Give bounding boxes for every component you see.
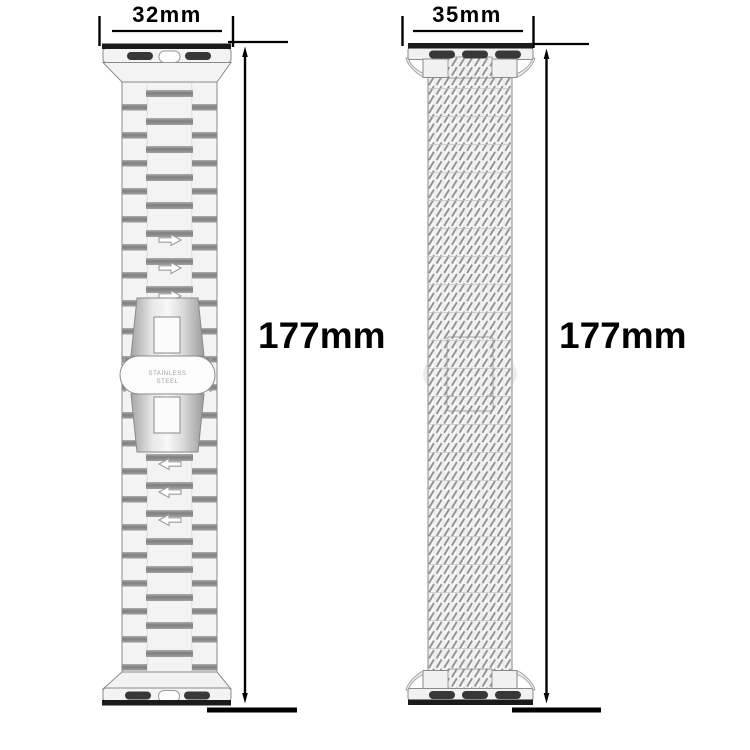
butterfly-clasp: STAINLESS STEEL	[120, 298, 215, 452]
clasp-screw-icon	[209, 389, 212, 392]
bottom-watch-adapter	[406, 669, 535, 705]
adapter-flare	[103, 63, 231, 83]
right-length-label: 177mm	[559, 315, 687, 356]
adapter-dark-bar	[408, 43, 533, 49]
mesh-tongue	[448, 57, 492, 78]
adapter-slot	[462, 51, 488, 59]
clasp-screw-icon	[123, 358, 126, 361]
left-length-label: 177mm	[258, 315, 386, 356]
clasp-engraving-line2: STEEL	[156, 379, 178, 385]
clasp-lower-cutout	[154, 397, 180, 433]
top-watch-adapter	[102, 44, 231, 83]
adapter-dark-bar	[102, 44, 231, 50]
adapter-flare	[103, 672, 231, 689]
right-measure-arrow-up-icon	[544, 49, 550, 60]
clasp-screw-icon	[209, 358, 212, 361]
adapter-slot	[184, 692, 210, 700]
clasp-engraving-line1: STAINLESS	[149, 371, 187, 377]
right-band	[406, 43, 535, 705]
mesh-row-seams	[428, 77, 512, 673]
bottom-watch-adapter	[102, 672, 231, 706]
product-dimension-image: 32mm 177mm	[0, 0, 750, 750]
adapter-dark-bar	[102, 700, 231, 706]
adapter-slot	[495, 51, 521, 59]
clasp-upper-cutout	[154, 317, 180, 353]
adapter-slot	[495, 691, 521, 699]
adapter-slot	[429, 51, 455, 59]
mesh-tongue	[448, 669, 492, 690]
adapter-slot	[125, 692, 151, 700]
adapter-dark-bar	[408, 700, 533, 706]
right-measure-arrow-down-icon	[544, 693, 550, 704]
adapter-slot	[462, 691, 488, 699]
adapter-slot	[429, 691, 455, 699]
adapter-slot	[127, 52, 153, 60]
left-band: STAINLESS STEEL	[102, 44, 231, 706]
adapter-release-button	[159, 51, 180, 63]
left-measure-arrow-up-icon	[242, 47, 248, 58]
left-width-label: 32mm	[132, 2, 202, 27]
clasp-screw-icon	[123, 389, 126, 392]
top-watch-adapter	[406, 43, 535, 78]
adapter-slot	[185, 52, 211, 60]
left-measure-arrow-down-icon	[242, 693, 248, 704]
dimension-drawing: 32mm 177mm	[0, 0, 750, 750]
right-width-label: 35mm	[432, 2, 502, 27]
